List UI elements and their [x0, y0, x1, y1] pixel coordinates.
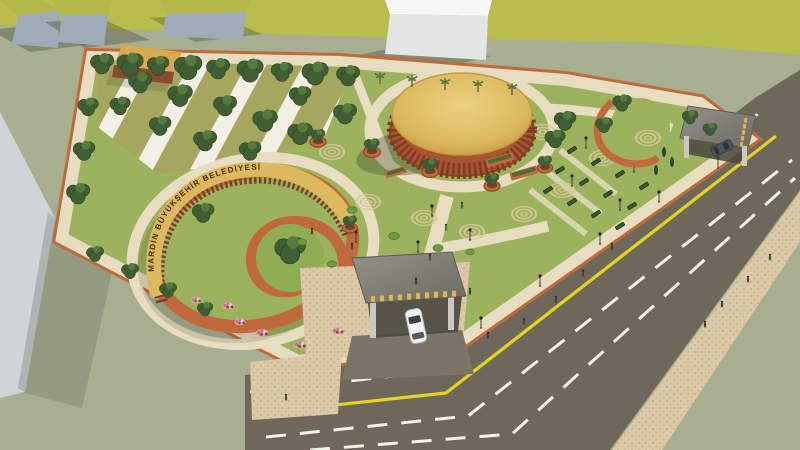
building-block-roof [52, 0, 112, 16]
building-block-side [58, 14, 108, 46]
bush [466, 249, 474, 255]
cypress-tree [654, 165, 658, 175]
tree-planter [484, 173, 500, 191]
tree-planter [422, 159, 439, 178]
gate-apron [342, 330, 474, 380]
cypress-tree [662, 147, 666, 157]
flower-bed [255, 329, 268, 337]
scene-svg: MARDİN BÜYÜKŞEHİR BELEDİYESİ [0, 0, 800, 450]
building-block-roof [160, 0, 250, 14]
flower-bed [293, 341, 306, 349]
tree-planter [537, 156, 552, 173]
gate-pillar [370, 300, 376, 338]
bush [389, 232, 400, 239]
flower-bed [222, 302, 234, 309]
flower-bed [332, 327, 344, 334]
white-building-roof [385, 0, 492, 16]
tree-planter [342, 216, 357, 233]
side-gate-pillar [684, 136, 689, 158]
bush [297, 239, 306, 245]
gate-pillar [448, 294, 454, 330]
bush [433, 245, 443, 252]
side-gate-pillar [742, 146, 747, 166]
render-viewport: MARDİN BÜYÜKŞEHİR BELEDİYESİ [0, 0, 800, 450]
bush [327, 261, 336, 267]
white-building-side [385, 14, 488, 60]
cypress-tree [670, 157, 674, 167]
flower-bed [235, 319, 246, 325]
tree-planter [364, 139, 381, 158]
pavilion-gold-roof [392, 73, 532, 155]
building-block-side [162, 12, 246, 40]
plaza-shoulder [250, 352, 342, 420]
flower-bed [191, 297, 202, 303]
bush [347, 207, 357, 214]
